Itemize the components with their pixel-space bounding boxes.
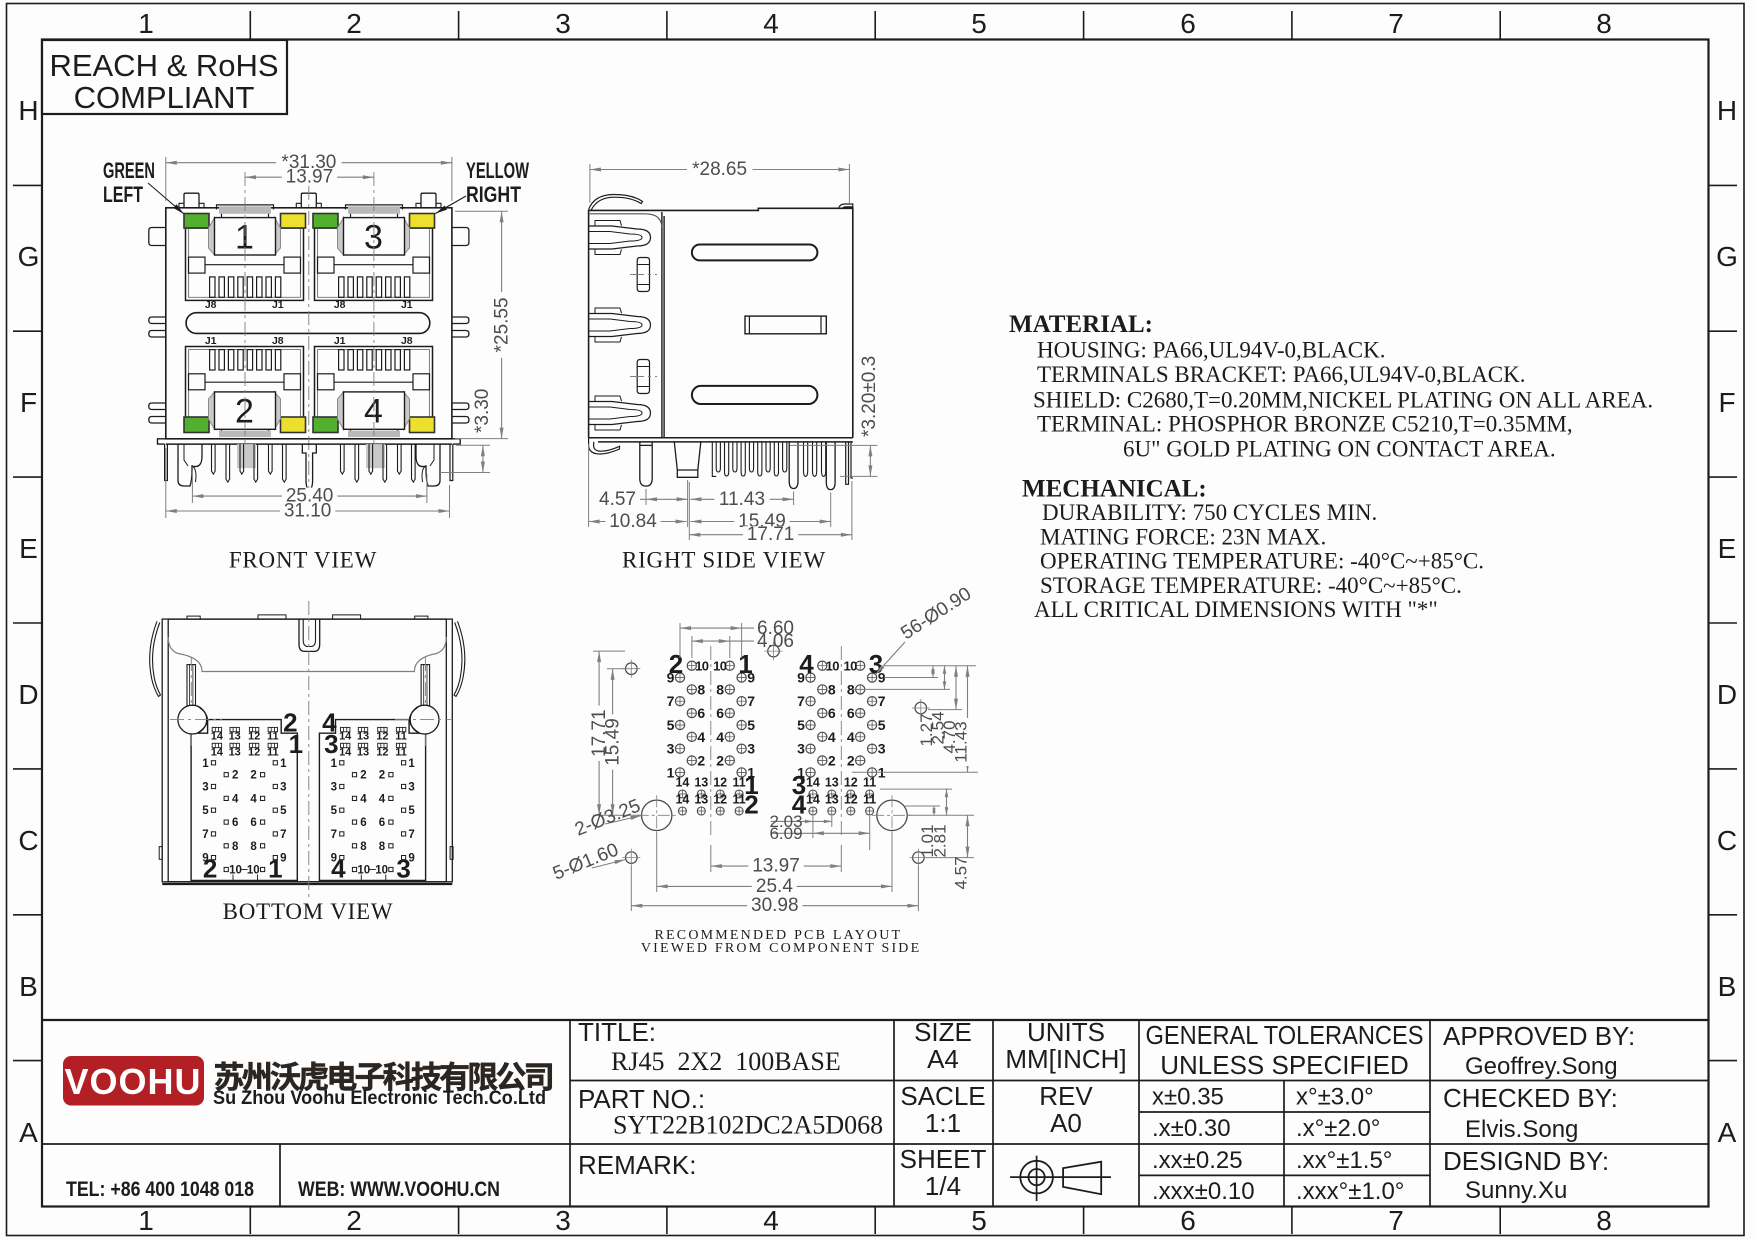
- svg-text:J8: J8: [272, 335, 284, 347]
- svg-text:4: 4: [763, 1205, 779, 1236]
- svg-text:8: 8: [379, 841, 386, 853]
- svg-text:13: 13: [357, 747, 369, 759]
- svg-text:.xxx°±1.0°: .xxx°±1.0°: [1296, 1178, 1404, 1205]
- svg-text:H: H: [18, 95, 38, 126]
- svg-text:6: 6: [232, 817, 238, 829]
- svg-text:CHECKED BY:: CHECKED BY:: [1443, 1083, 1618, 1113]
- svg-text:13: 13: [825, 776, 839, 790]
- svg-text:7: 7: [408, 829, 414, 841]
- svg-text:8: 8: [360, 841, 367, 853]
- svg-text:5: 5: [797, 717, 805, 733]
- svg-text:.xx°±1.5°: .xx°±1.5°: [1296, 1147, 1392, 1174]
- svg-text:13: 13: [357, 731, 369, 743]
- svg-text:C: C: [1717, 825, 1737, 856]
- svg-text:10: 10: [713, 659, 727, 674]
- svg-text:1: 1: [280, 758, 287, 770]
- svg-text:SACLE: SACLE: [900, 1081, 985, 1111]
- svg-text:SHEET: SHEET: [900, 1144, 987, 1174]
- svg-text:5: 5: [971, 8, 987, 39]
- svg-text:3: 3: [324, 729, 338, 759]
- svg-text:LEFT: LEFT: [103, 182, 143, 207]
- svg-text:REV: REV: [1039, 1081, 1093, 1111]
- svg-text:J8: J8: [334, 299, 346, 311]
- svg-text:8: 8: [250, 841, 257, 853]
- svg-text:4: 4: [232, 793, 239, 805]
- svg-text:6: 6: [1180, 8, 1196, 39]
- svg-text:1: 1: [268, 854, 282, 884]
- svg-text:11: 11: [267, 731, 279, 743]
- svg-text:7: 7: [280, 829, 286, 841]
- svg-text:E: E: [1718, 533, 1737, 564]
- svg-text:2: 2: [346, 8, 362, 39]
- svg-text:3: 3: [396, 854, 410, 884]
- svg-text:11: 11: [863, 776, 876, 790]
- svg-text:SHIELD: C2680,T=0.20MM,NICKEL: SHIELD: C2680,T=0.20MM,NICKEL PLATING ON…: [1033, 387, 1653, 412]
- svg-text:B: B: [1718, 971, 1737, 1002]
- svg-text:SIZE: SIZE: [914, 1017, 972, 1047]
- svg-text:Elvis.Song: Elvis.Song: [1465, 1116, 1578, 1143]
- svg-text:7: 7: [331, 829, 337, 841]
- svg-text:4: 4: [799, 649, 814, 679]
- svg-text:1: 1: [738, 649, 752, 679]
- svg-text:13: 13: [825, 793, 839, 807]
- svg-text:REACH & RoHS: REACH & RoHS: [49, 48, 278, 83]
- svg-text:TITLE:: TITLE:: [578, 1017, 656, 1047]
- svg-text:25.4: 25.4: [756, 876, 793, 897]
- svg-text:7: 7: [667, 693, 675, 709]
- svg-text:YELLOW: YELLOW: [466, 158, 529, 183]
- svg-text:1:1: 1:1: [925, 1108, 961, 1138]
- svg-text:14: 14: [339, 747, 352, 759]
- svg-text:6: 6: [250, 817, 256, 829]
- svg-text:.x±0.30: .x±0.30: [1152, 1115, 1231, 1142]
- svg-text:11: 11: [267, 747, 279, 759]
- svg-text:*3.20±0.3: *3.20±0.3: [859, 356, 880, 437]
- svg-text:GREEN: GREEN: [103, 158, 155, 183]
- svg-text:2: 2: [250, 770, 256, 782]
- svg-text:3: 3: [555, 8, 571, 39]
- svg-text:2.81: 2.81: [931, 824, 950, 857]
- svg-text:12: 12: [248, 747, 260, 759]
- svg-text:*25.55: *25.55: [492, 297, 513, 352]
- svg-text:2: 2: [716, 753, 724, 769]
- svg-text:11: 11: [863, 793, 876, 807]
- svg-text:1: 1: [408, 758, 415, 770]
- svg-text:DESIGND BY:: DESIGND BY:: [1443, 1146, 1609, 1176]
- svg-text:VIEWED FROM COMPONENT SIDE: VIEWED FROM COMPONENT SIDE: [641, 941, 922, 956]
- svg-text:6: 6: [716, 705, 724, 721]
- svg-text:2: 2: [346, 1205, 362, 1236]
- svg-text:5: 5: [331, 805, 338, 817]
- svg-text:6U" GOLD PLATING ON CONTACT AR: 6U" GOLD PLATING ON CONTACT AREA.: [1123, 437, 1556, 462]
- svg-text:.x°±2.0°: .x°±2.0°: [1296, 1115, 1380, 1142]
- svg-text:2: 2: [847, 753, 855, 769]
- svg-text:12: 12: [248, 731, 260, 743]
- svg-text:4.57: 4.57: [599, 489, 636, 510]
- svg-text:7: 7: [1388, 1205, 1404, 1236]
- svg-text:2: 2: [379, 770, 385, 782]
- svg-text:11: 11: [395, 747, 407, 759]
- svg-text:1: 1: [667, 764, 675, 780]
- svg-text:8: 8: [232, 841, 239, 853]
- svg-text:3: 3: [331, 782, 337, 794]
- svg-text:TEL: +86 400 1048 018: TEL: +86 400 1048 018: [66, 1178, 254, 1201]
- svg-text:3: 3: [747, 741, 755, 757]
- svg-text:10: 10: [826, 659, 840, 674]
- svg-text:OPERATING TEMPERATURE: -40°C~+: OPERATING TEMPERATURE: -40°C~+85°C.: [1040, 548, 1484, 573]
- svg-text:3: 3: [280, 782, 286, 794]
- svg-text:7: 7: [878, 693, 886, 709]
- svg-text:TERMINALS BRACKET: PA66,UL94V-: TERMINALS BRACKET: PA66,UL94V-0,BLACK.: [1037, 362, 1526, 387]
- svg-text:1/4: 1/4: [925, 1171, 961, 1201]
- svg-text:J1: J1: [205, 335, 217, 347]
- svg-text:Su Zhou Voohu Electronic Tech.: Su Zhou Voohu Electronic Tech.Co.Ltd: [213, 1088, 546, 1109]
- svg-text:3: 3: [202, 782, 208, 794]
- svg-text:J8: J8: [205, 299, 217, 311]
- svg-text:2: 2: [828, 753, 836, 769]
- svg-text:8: 8: [1596, 1205, 1612, 1236]
- svg-text:4.57: 4.57: [952, 856, 971, 889]
- svg-text:x°±3.0°: x°±3.0°: [1296, 1084, 1374, 1111]
- svg-text:D: D: [18, 679, 38, 710]
- svg-text:J1: J1: [334, 335, 346, 347]
- svg-text:31.10: 31.10: [284, 501, 332, 522]
- svg-text:GENERAL TOLERANCES: GENERAL TOLERANCES: [1146, 1020, 1424, 1050]
- svg-text:A0: A0: [1050, 1108, 1082, 1138]
- svg-text:7: 7: [1388, 8, 1404, 39]
- svg-text:.xxx±0.10: .xxx±0.10: [1152, 1178, 1255, 1205]
- svg-text:MATERIAL:: MATERIAL:: [1009, 311, 1153, 338]
- svg-text:5: 5: [667, 717, 675, 733]
- svg-text:30.98: 30.98: [751, 895, 799, 916]
- svg-text:4: 4: [360, 793, 367, 805]
- svg-text:COMPLIANT: COMPLIANT: [74, 80, 255, 115]
- svg-text:4: 4: [379, 793, 386, 805]
- svg-text:Geoffrey.Song: Geoffrey.Song: [1465, 1053, 1618, 1080]
- svg-text:A: A: [1718, 1117, 1737, 1148]
- svg-text:.xx±0.25: .xx±0.25: [1152, 1147, 1243, 1174]
- svg-text:FRONT VIEW: FRONT VIEW: [229, 548, 377, 573]
- svg-text:PART NO.:: PART NO.:: [578, 1084, 705, 1114]
- svg-text:*3.30: *3.30: [472, 389, 493, 433]
- svg-text:4: 4: [250, 793, 257, 805]
- svg-text:4: 4: [847, 729, 855, 745]
- svg-text:12: 12: [844, 776, 858, 790]
- svg-text:J1: J1: [272, 299, 284, 311]
- svg-text:2: 2: [669, 649, 683, 679]
- svg-text:12: 12: [376, 747, 388, 759]
- svg-text:5: 5: [408, 805, 415, 817]
- svg-text:13: 13: [229, 747, 241, 759]
- svg-text:2: 2: [203, 854, 217, 884]
- svg-text:7: 7: [797, 693, 805, 709]
- svg-text:BOTTOM VIEW: BOTTOM VIEW: [223, 899, 394, 924]
- svg-text:6: 6: [1180, 1205, 1196, 1236]
- svg-text:MECHANICAL:: MECHANICAL:: [1022, 476, 1207, 503]
- svg-text:1: 1: [235, 218, 254, 256]
- svg-text:6.09: 6.09: [769, 824, 802, 843]
- svg-text:5: 5: [747, 717, 755, 733]
- svg-text:F: F: [1718, 387, 1735, 418]
- svg-text:E: E: [19, 533, 38, 564]
- svg-text:13.97: 13.97: [752, 856, 800, 877]
- svg-text:MM[INCH]: MM[INCH]: [1005, 1044, 1126, 1074]
- svg-text:D: D: [1717, 679, 1737, 710]
- svg-text:Sunny.Xu: Sunny.Xu: [1465, 1177, 1567, 1204]
- svg-text:MATING FORCE: 23N MAX.: MATING FORCE: 23N MAX.: [1040, 524, 1326, 549]
- svg-text:11.43: 11.43: [719, 489, 765, 510]
- svg-text:12: 12: [713, 776, 727, 790]
- svg-text:HOUSING: PA66,UL94V-0,BLACK.: HOUSING: PA66,UL94V-0,BLACK.: [1037, 338, 1385, 363]
- svg-text:8: 8: [716, 681, 724, 697]
- svg-text:H: H: [1717, 95, 1737, 126]
- svg-text:10: 10: [843, 659, 857, 674]
- svg-text:14: 14: [675, 776, 689, 790]
- svg-text:5: 5: [971, 1205, 987, 1236]
- svg-text:4: 4: [716, 729, 724, 745]
- svg-text:12: 12: [713, 793, 727, 807]
- svg-text:J8: J8: [401, 335, 413, 347]
- svg-text:F: F: [20, 387, 37, 418]
- svg-text:1: 1: [138, 1205, 154, 1236]
- svg-text:3: 3: [797, 741, 805, 757]
- svg-text:VOOHU: VOOHU: [64, 1061, 201, 1102]
- svg-text:7: 7: [747, 693, 755, 709]
- svg-text:10.84: 10.84: [609, 511, 657, 532]
- svg-text:4: 4: [828, 729, 836, 745]
- svg-text:13: 13: [694, 776, 708, 790]
- svg-text:8: 8: [697, 681, 705, 697]
- svg-text:ALL CRITICAL DIMENSIONS WITH ": ALL CRITICAL DIMENSIONS WITH "*": [1034, 597, 1438, 622]
- svg-text:5: 5: [202, 805, 209, 817]
- svg-text:14: 14: [806, 793, 820, 807]
- svg-text:12: 12: [844, 793, 858, 807]
- svg-text:12: 12: [376, 731, 388, 743]
- svg-text:14: 14: [211, 747, 224, 759]
- svg-text:2: 2: [697, 753, 705, 769]
- svg-text:14: 14: [675, 793, 689, 807]
- svg-text:3: 3: [667, 741, 675, 757]
- svg-text:5: 5: [280, 805, 287, 817]
- svg-text:RIGHT: RIGHT: [466, 182, 521, 207]
- svg-text:14: 14: [806, 776, 820, 790]
- svg-text:UNITS: UNITS: [1027, 1017, 1105, 1047]
- svg-text:3: 3: [878, 741, 886, 757]
- svg-text:6: 6: [847, 705, 855, 721]
- svg-text:1: 1: [331, 758, 338, 770]
- svg-text:6: 6: [379, 817, 385, 829]
- svg-text:TERMINAL: PHOSPHOR BRONZE C521: TERMINAL: PHOSPHOR BRONZE C5210,T=0.35MM…: [1037, 411, 1573, 436]
- svg-text:1: 1: [138, 8, 154, 39]
- svg-text:DURABILITY: 750 CYCLES MIN.: DURABILITY: 750 CYCLES MIN.: [1042, 500, 1377, 525]
- svg-text:11.43: 11.43: [952, 721, 971, 762]
- svg-text:8: 8: [828, 681, 836, 697]
- svg-text:15.49: 15.49: [603, 718, 624, 766]
- svg-text:APPROVED BY:: APPROVED BY:: [1443, 1021, 1635, 1051]
- svg-text:STORAGE TEMPERATURE: -40°C~+85: STORAGE TEMPERATURE: -40°C~+85°C.: [1040, 573, 1462, 598]
- svg-text:4: 4: [763, 8, 779, 39]
- svg-text:4: 4: [697, 729, 705, 745]
- svg-text:WEB: WWW.VOOHU.CN: WEB: WWW.VOOHU.CN: [298, 1178, 500, 1201]
- svg-text:RJ45 2X2 100BASE: RJ45 2X2 100BASE: [611, 1047, 841, 1076]
- svg-text:G: G: [1716, 241, 1738, 272]
- svg-text:4.06: 4.06: [757, 631, 794, 652]
- svg-text:10: 10: [695, 659, 709, 674]
- svg-text:SYT22B102DC2A5D068: SYT22B102DC2A5D068: [613, 1111, 883, 1140]
- svg-text:4: 4: [331, 854, 346, 884]
- svg-text:1: 1: [202, 758, 209, 770]
- svg-text:11: 11: [395, 731, 407, 743]
- svg-text:2: 2: [232, 770, 238, 782]
- svg-text:8: 8: [1596, 8, 1612, 39]
- svg-text:13: 13: [229, 731, 241, 743]
- svg-text:*28.65: *28.65: [692, 159, 747, 180]
- svg-text:G: G: [18, 241, 40, 272]
- svg-text:2: 2: [744, 790, 758, 820]
- svg-text:14: 14: [211, 731, 224, 743]
- svg-text:2: 2: [360, 770, 366, 782]
- svg-text:A4: A4: [927, 1044, 959, 1074]
- svg-text:13.97: 13.97: [286, 167, 334, 188]
- svg-text:A: A: [19, 1117, 38, 1148]
- svg-text:13: 13: [694, 793, 708, 807]
- svg-text:14: 14: [339, 731, 352, 743]
- svg-text:REMARK:: REMARK:: [578, 1150, 696, 1180]
- svg-text:6: 6: [360, 817, 366, 829]
- svg-text:10: 10: [357, 865, 370, 877]
- svg-text:7: 7: [202, 829, 208, 841]
- svg-text:5: 5: [878, 717, 886, 733]
- svg-text:UNLESS SPECIFIED: UNLESS SPECIFIED: [1160, 1050, 1409, 1080]
- svg-text:3: 3: [555, 1205, 571, 1236]
- svg-text:RIGHT SIDE VIEW: RIGHT SIDE VIEW: [622, 548, 826, 573]
- svg-text:6: 6: [828, 705, 836, 721]
- svg-text:6: 6: [697, 705, 705, 721]
- svg-text:J1: J1: [401, 299, 413, 311]
- svg-text:3: 3: [408, 782, 414, 794]
- svg-text:x±0.35: x±0.35: [1152, 1084, 1224, 1111]
- svg-text:B: B: [19, 971, 38, 1002]
- svg-text:10: 10: [229, 865, 242, 877]
- svg-text:2: 2: [235, 393, 254, 431]
- svg-text:1: 1: [289, 729, 303, 759]
- svg-text:17.71: 17.71: [747, 524, 795, 545]
- svg-text:C: C: [18, 825, 38, 856]
